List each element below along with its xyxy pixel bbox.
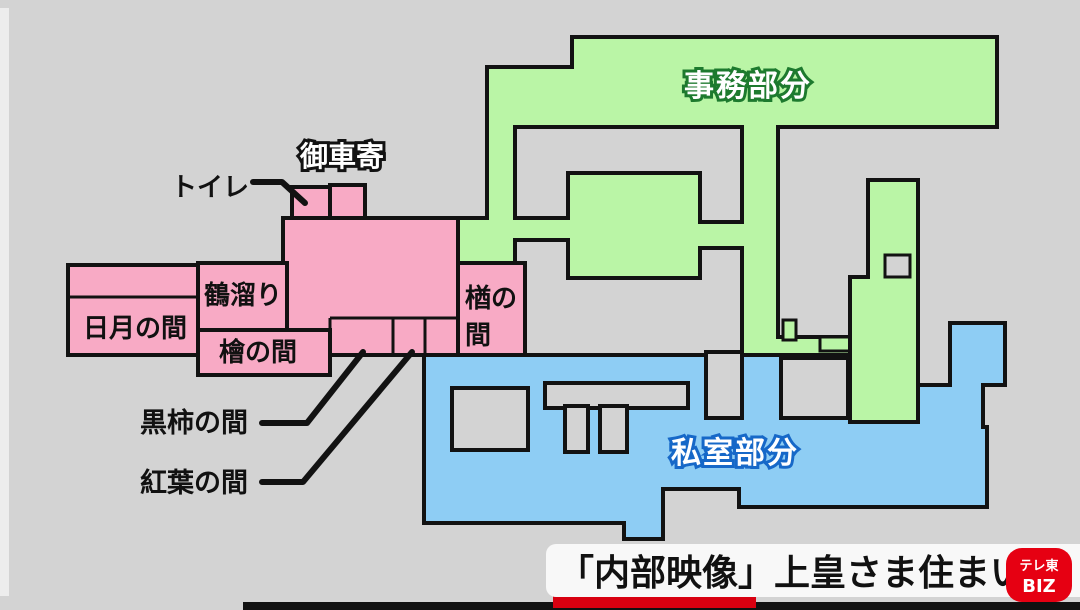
floor-plan-svg: 事務部分 私室部分 御車寄 トイレ 鶴溜り 日月の間 檜の間 楢の 間 黒柿の間… (0, 0, 1080, 610)
porch-label: 御車寄 (299, 140, 384, 173)
momiji-label: 紅葉の間 (140, 468, 248, 499)
office-corridor-bump (783, 320, 796, 340)
private-zone-label: 私室部分 (671, 436, 799, 471)
arm-connector (820, 337, 852, 351)
hinoki-label: 檜の間 (219, 337, 297, 368)
room-porch (330, 185, 365, 218)
news-frame: 事務部分 私室部分 御車寄 トイレ 鶴溜り 日月の間 檜の間 楢の 間 黒柿の間… (0, 0, 1080, 610)
courtyard-4 (781, 358, 848, 418)
toilet-label: トイレ (171, 173, 249, 203)
arm-notch (885, 255, 910, 277)
nara-label-line2: 間 (465, 321, 491, 351)
courtyard-2-leg-a (565, 406, 588, 452)
logo-line1: テレ東 (1019, 558, 1058, 574)
left-edge-strip (0, 8, 9, 596)
room-toilet (292, 187, 330, 218)
kurogaki-label: 黒柿の間 (140, 407, 248, 439)
courtyard-2-leg-b (600, 406, 627, 452)
nichigetsu-label: 日月の間 (83, 314, 187, 344)
office-zone-label: 事務部分 (684, 69, 812, 104)
banner-title: 「内部映像」上皇さま住まい (558, 553, 1026, 594)
logo-line2: BIZ (1022, 576, 1055, 597)
tsurudamari-label: 鶴溜り (204, 280, 282, 311)
courtyard-3 (706, 352, 742, 418)
nara-label-line1: 楢の (465, 284, 517, 314)
courtyard-1 (452, 388, 528, 450)
